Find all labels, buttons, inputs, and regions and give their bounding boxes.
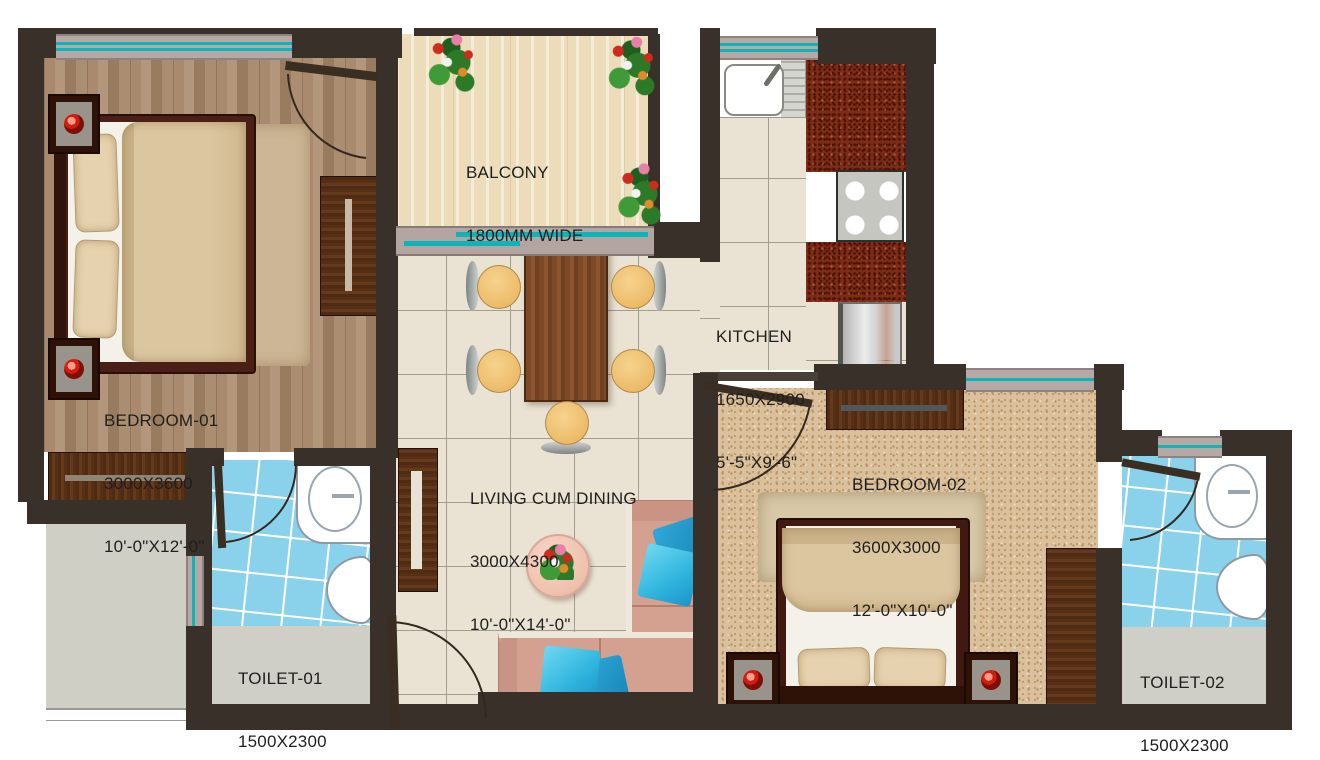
chair-seat (611, 265, 655, 309)
flower-plant (422, 30, 480, 92)
room-name: TOILET-02 (1140, 672, 1229, 693)
window-bedroom2 (966, 368, 1094, 392)
nightstand-lamp (964, 652, 1018, 708)
floor-plan: BALCONY 1800MM WIDE BEDROOM-01 3000X3600… (0, 0, 1320, 760)
room-label-bedroom2: BEDROOM-02 3600X3000 12'-0"X10'-0" (852, 432, 966, 663)
dining-chair (610, 342, 666, 398)
room-size-ft: 5'-5"X9'-6" (716, 452, 805, 473)
room-size-mm: 1500X2300 (1140, 735, 1229, 756)
room-label-kitchen: KITCHEN 1650X2900 5'-5"X9'-6" (716, 284, 805, 515)
tv-screen-slot (411, 471, 422, 569)
dining-chair (466, 342, 522, 398)
chair-seat (477, 349, 521, 393)
room-size-ft: 12'-0"X10'-0" (852, 600, 966, 621)
room-size-mm: 3600X3000 (852, 537, 966, 558)
wall-toilet1-living (370, 448, 396, 704)
washbasin-toilet1 (296, 456, 376, 544)
basin-bowl (308, 466, 362, 532)
basin-faucet (332, 494, 354, 498)
room-name: BEDROOM-01 (104, 410, 218, 431)
wall-toilet2-right-outer (1266, 430, 1292, 730)
wall-left-outer (18, 28, 44, 502)
room-name: BEDROOM-02 (852, 474, 966, 495)
table-lamp (981, 670, 1001, 690)
wall-living-bedroom2 (693, 373, 718, 730)
room-name: LIVING CUM DINING (470, 488, 637, 509)
room-label-bedroom1: BEDROOM-01 3000X3600 10'-0"X12'-0" (104, 368, 218, 599)
dining-chair (610, 258, 666, 314)
duct-edge-strips (46, 708, 188, 730)
room-size-mm: 3000X3600 (104, 473, 218, 494)
room-name: KITCHEN (716, 326, 805, 347)
wall-bedroom2-toilet2-lower (1096, 548, 1122, 730)
room-label-living: LIVING CUM DINING 3000X4300 10'-0"X14'-0… (470, 446, 637, 677)
window-kitchen (720, 36, 818, 60)
wall-kitchen-right (906, 28, 934, 390)
window-pane (720, 43, 818, 46)
wall-living-bottom-outer (370, 704, 700, 730)
refrigerator (838, 302, 902, 366)
flower-plant (602, 32, 660, 96)
tv-unit (398, 448, 438, 592)
room-name: TOILET-01 (238, 668, 327, 689)
dresser-bedroom2 (826, 388, 964, 430)
room-name: BALCONY (466, 162, 583, 183)
room-size-mm: 1650X2900 (716, 389, 805, 410)
chair-seat (611, 349, 655, 393)
window-pane (56, 42, 292, 45)
flower-plant (614, 158, 664, 226)
nightstand-lamp (726, 652, 780, 708)
table-lamp (743, 670, 763, 690)
window-pane (56, 48, 292, 51)
window-pane (1158, 445, 1222, 448)
window-pane (966, 378, 1094, 381)
wardrobe-bedroom2 (1046, 548, 1100, 710)
room-label-balcony: BALCONY 1800MM WIDE (466, 120, 583, 288)
wardrobe-handle-slot (345, 199, 352, 291)
sofa-cushion (637, 543, 701, 607)
wall-bedroom2-toilet2-upper (1096, 364, 1122, 462)
room-size-mm: 3000X4300 (470, 551, 637, 572)
basin-faucet (1228, 490, 1250, 494)
dresser-handle-slot (841, 405, 947, 411)
wall-toilet2-top-left (1122, 430, 1162, 456)
wall-kitchen-left (700, 28, 720, 262)
room-size-mm: 1500X2300 (238, 731, 327, 752)
room-label-toilet1: TOILET-01 1500X2300 5'-0"X7'-6" (238, 626, 327, 760)
bed-bedroom1-blanket (122, 122, 246, 362)
room-size-mm: 1800MM WIDE (466, 225, 583, 246)
basin-bowl (1206, 464, 1258, 528)
table-lamp (64, 114, 84, 134)
wardrobe-bedroom1 (320, 176, 378, 316)
nightstand-lamp (48, 94, 100, 154)
window-toilet2 (1158, 436, 1222, 458)
room-size-ft: 10'-0"X14'-0" (470, 614, 637, 635)
bed-bedroom2-headboard (772, 686, 970, 706)
nightstand-lamp (48, 338, 100, 400)
wall-bedroom2-top (814, 364, 966, 390)
window-pane (720, 49, 818, 52)
bed-bedroom1-pillow (72, 239, 119, 338)
wall-bedroom1-balcony (376, 28, 398, 458)
washbasin-toilet2 (1194, 454, 1272, 540)
window-bedroom1 (56, 34, 292, 60)
chair-seat (545, 401, 589, 445)
room-size-ft: 10'-0"X12'-0" (104, 536, 218, 557)
room-label-toilet2: TOILET-02 1500X2300 5'-0"X7'-6" (1140, 630, 1229, 760)
wall-living-bottom-inner (478, 692, 700, 706)
gas-stove (836, 170, 904, 242)
granite-counter-mid (806, 242, 906, 302)
table-lamp (64, 359, 84, 379)
granite-counter-top (806, 58, 906, 172)
